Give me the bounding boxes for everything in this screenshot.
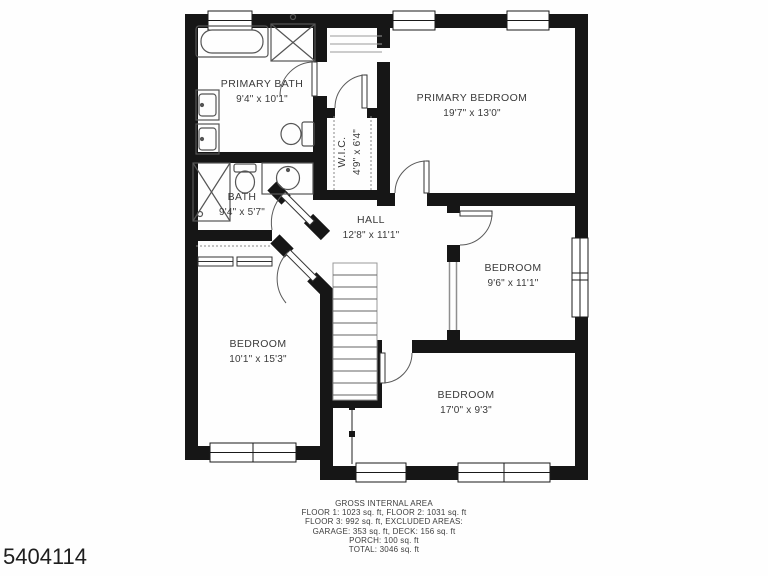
partition-cap	[349, 405, 355, 410]
area-summary: GROSS INTERNAL AREA FLOOR 1: 1023 sq. ft…	[0, 499, 768, 554]
window	[356, 463, 406, 482]
photo-id-label: 5404114	[3, 544, 87, 570]
room-label-bedroom-right: BEDROOM 9'6" x 11'1"	[484, 260, 541, 290]
door-wic	[335, 75, 367, 108]
room-name: BEDROOM	[484, 262, 541, 274]
room-name: BEDROOM	[437, 389, 494, 401]
sink-vanity	[196, 124, 219, 154]
room-label-wic: W.I.C. 4'9" x 6'4"	[334, 129, 364, 175]
window	[210, 443, 296, 462]
area-summary-line: FLOOR 1: 1023 sq. ft, FLOOR 2: 1031 sq. …	[0, 508, 768, 517]
door-bedroom-right	[460, 211, 492, 245]
room-dims: 12'8" x 11'1"	[343, 230, 400, 241]
partition-cap	[349, 431, 355, 437]
bifold-door	[198, 257, 272, 266]
room-label-hall: HALL 12'8" x 11'1"	[343, 212, 400, 242]
window	[507, 11, 549, 30]
area-summary-title: GROSS INTERNAL AREA	[0, 499, 768, 508]
room-dims: 17'0" x 9'3"	[440, 405, 492, 416]
room-label-bedroom-bottom: BEDROOM 17'0" x 9'3"	[437, 387, 494, 417]
area-summary-line: GARAGE: 353 sq. ft, DECK: 156 sq. ft	[0, 527, 768, 536]
room-dims: 9'4" x 10'1"	[236, 94, 288, 105]
window	[393, 11, 435, 30]
room-dims: 4'9" x 6'4"	[352, 129, 363, 175]
area-summary-line: FLOOR 3: 992 sq. ft, EXCLUDED AREAS:	[0, 517, 768, 526]
window	[458, 463, 550, 482]
door-bedroom-left-diagonal	[277, 250, 317, 303]
room-name: PRIMARY BATH	[221, 78, 303, 90]
area-summary-line: PORCH: 100 sq. ft	[0, 536, 768, 545]
room-name: HALL	[357, 214, 385, 226]
door-primary-bedroom	[395, 161, 429, 193]
room-label-bedroom-left: BEDROOM 10'1" x 15'3"	[229, 336, 286, 366]
staircase	[333, 263, 377, 400]
toilet	[281, 122, 314, 146]
room-dims: 9'6" x 11'1"	[488, 278, 539, 289]
window	[208, 11, 252, 30]
sink-vanity	[196, 90, 219, 120]
door-bedroom-bottom	[380, 353, 412, 383]
linen-shelves	[330, 36, 382, 52]
room-label-bath: BATH 9'4" x 5'7"	[219, 189, 265, 219]
room-label-primary-bath: PRIMARY BATH 9'4" x 10'1"	[221, 76, 303, 106]
bathtub	[196, 26, 268, 57]
floor-plan-page: PRIMARY BATH 9'4" x 10'1" PRIMARY BEDROO…	[0, 0, 768, 576]
room-dims: 9'4" x 5'7"	[219, 207, 265, 218]
room-dims: 10'1" x 15'3"	[229, 354, 286, 365]
room-name: BEDROOM	[229, 338, 286, 350]
area-summary-line: TOTAL: 3046 sq. ft	[0, 545, 768, 554]
room-dims: 19'7" x 13'0"	[443, 108, 500, 119]
floor-plan-drawing	[0, 0, 768, 496]
room-name: W.I.C.	[336, 137, 348, 168]
window	[572, 238, 588, 317]
room-label-primary-bedroom: PRIMARY BEDROOM 19'7" x 13'0"	[417, 90, 528, 120]
room-name: PRIMARY BEDROOM	[417, 92, 528, 104]
room-name: BATH	[228, 191, 257, 203]
